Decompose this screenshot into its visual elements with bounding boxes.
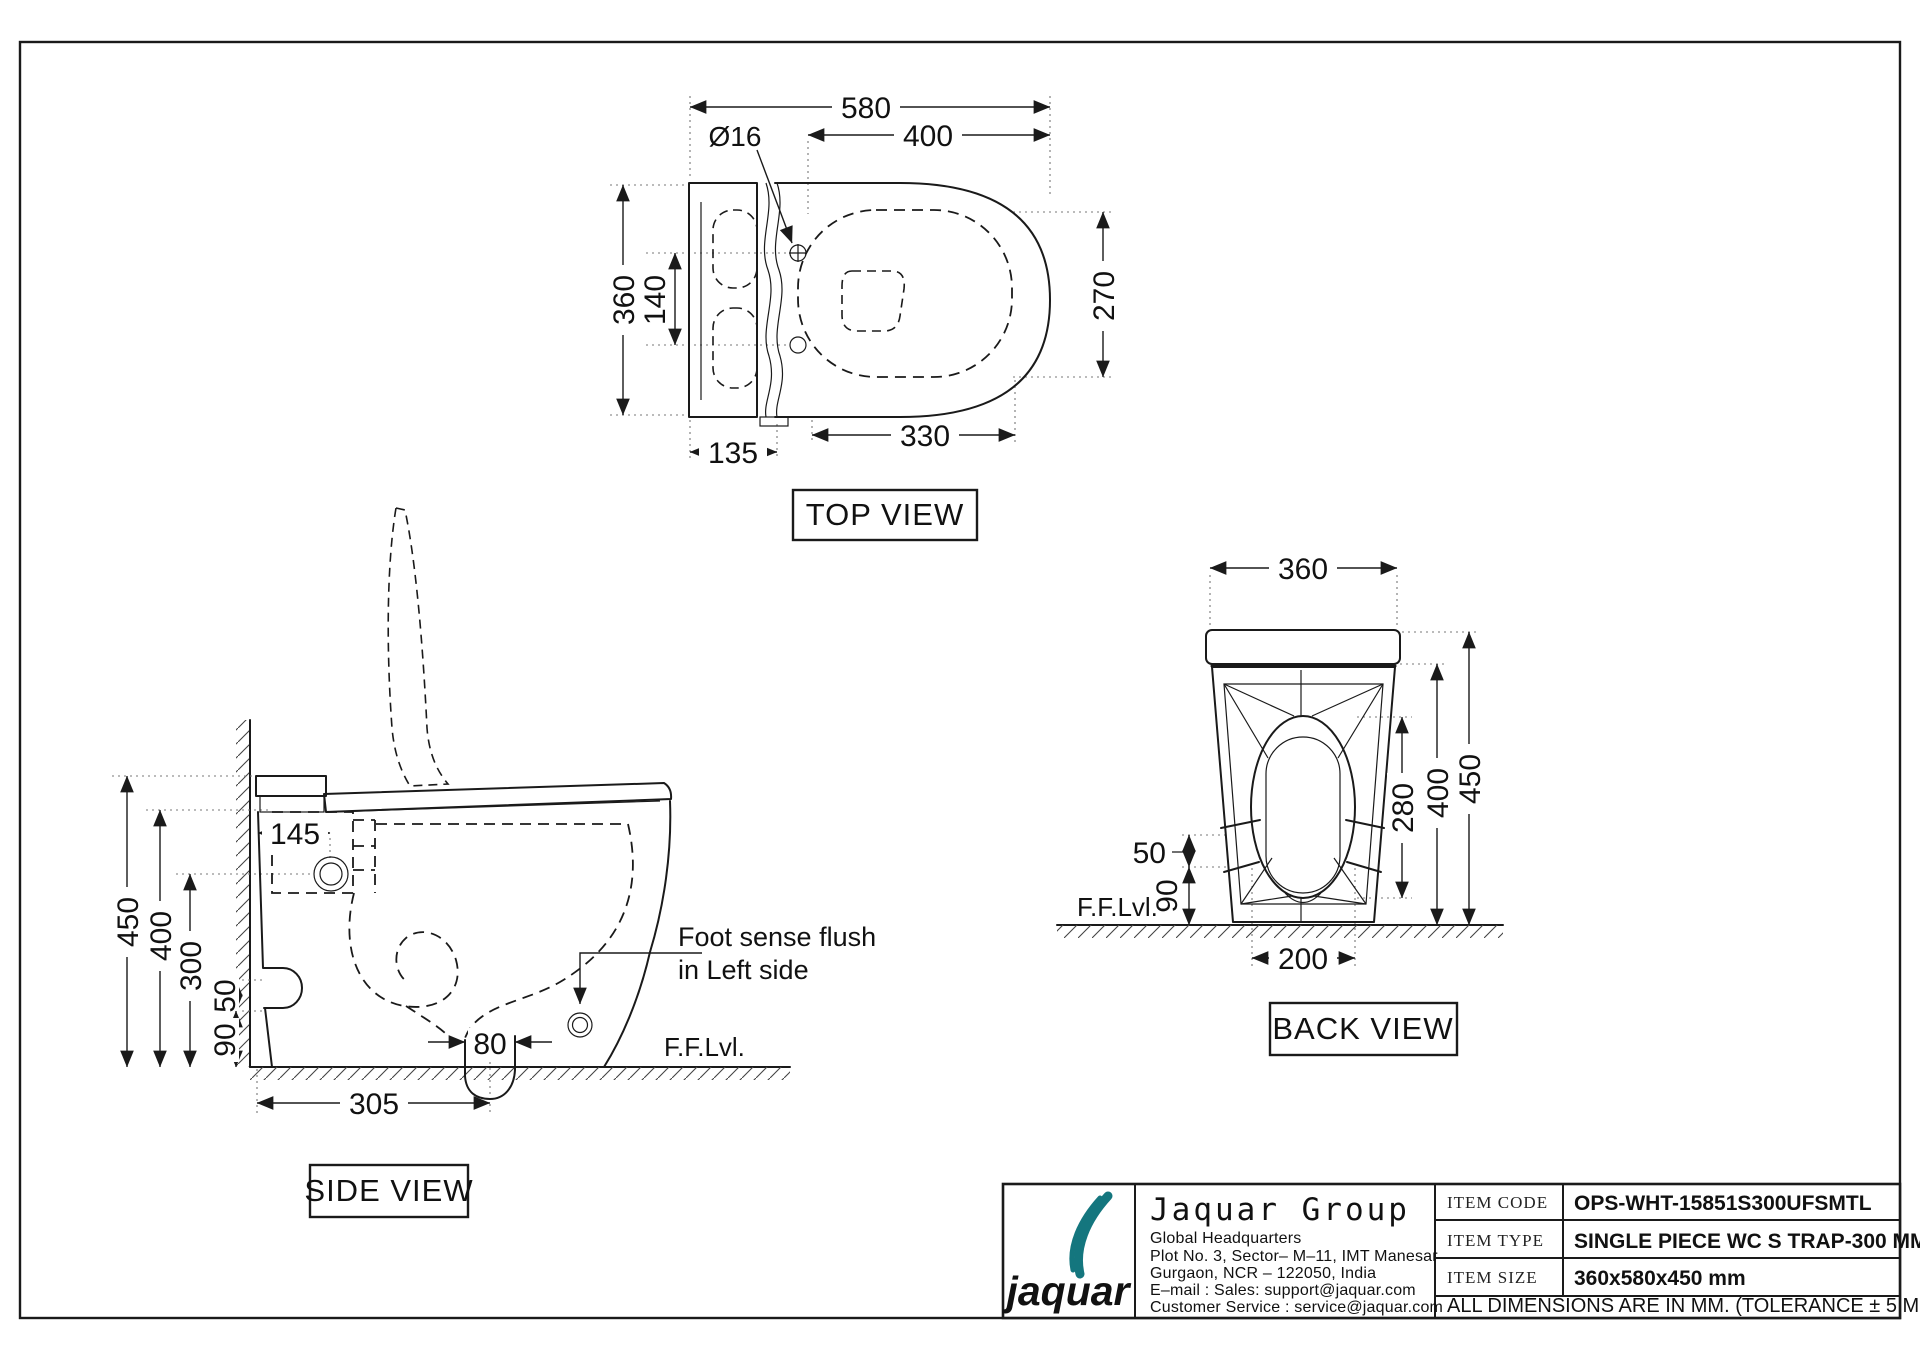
seat-dashed [798,210,1012,377]
dim-80: 80 [473,1028,506,1061]
dim-305: 305 [349,1088,399,1121]
dim-400-back: 400 [1422,768,1455,818]
dim-360-back: 360 [1278,553,1328,586]
view-side: F.F.Lvl. [112,508,876,1217]
dim-145: 145 [270,818,320,851]
back-belts [1221,820,1384,872]
hinge-wave-line-1 [764,183,771,417]
company-name: Jaquar Group [1150,1192,1410,1228]
item-size-label: ITEM SIZE [1447,1268,1538,1287]
drawing-sheet: 580 400 Ø16 360 140 270 330 135 TOP VIE [0,0,1920,1356]
item-size-value: 360x580x450 mm [1574,1267,1746,1290]
sheet-border [20,42,1900,1318]
title-block: jaquar Jaquar Group Global Headquarters … [1001,1184,1920,1318]
dim-dia16: Ø16 [709,121,762,152]
seat-lid-raised-dashed [388,508,448,786]
seat-closed [324,783,671,812]
back-dimensions: 360 450 400 280 50 90 200 [1133,553,1487,976]
logo-wordmark: jaquar [1001,1268,1131,1314]
side-ffl: F.F.Lvl. [664,1032,745,1062]
address-line-1: Global Headquarters [1150,1230,1301,1247]
foot-sensor-circle [568,1013,592,1037]
view-top: 580 400 Ø16 360 140 270 330 135 TOP VIE [608,92,1121,540]
dim-280-back: 280 [1387,783,1420,833]
dim-270: 270 [1088,271,1121,321]
address-line-3: Gurgaon, NCR – 122050, India [1150,1265,1376,1282]
top-view-wc-outline [689,183,1050,426]
address-line-5: Customer Service : service@jaquar.com [1150,1299,1443,1316]
back-ffl: F.F.Lvl. [1077,892,1158,922]
foot-sense-annotation: Foot sense flush in Left side [580,922,876,1004]
cistern-lid [256,776,326,796]
dim-50-back: 50 [1133,837,1166,870]
top-construction-lines [610,96,1112,460]
address-line-4: E–mail : Sales: support@jaquar.com [1150,1282,1416,1299]
back-view-label: BACK VIEW [1272,1011,1453,1046]
dim-140: 140 [639,275,672,325]
foot-sense-note-line2: in Left side [678,955,809,985]
water-spot-dashed [842,271,904,331]
cistern-back [1206,630,1400,664]
top-dimensions: 580 400 Ø16 360 140 270 330 135 [608,92,1121,470]
hinge-wave-line-2 [775,183,782,417]
technical-drawing: 580 400 Ø16 360 140 270 330 135 TOP VIE [0,0,1920,1356]
dim-580: 580 [841,92,891,125]
item-code-label: ITEM CODE [1447,1193,1548,1212]
dim-400-side: 400 [145,911,178,961]
dim-90-side: 90 [209,1023,242,1056]
dim-450-side: 450 [112,897,145,947]
item-code-value: OPS-WHT-15851S300UFSMTL [1574,1192,1872,1215]
side-floor-hatch [250,1067,790,1080]
item-type-label: ITEM TYPE [1447,1231,1544,1250]
dim-90-back: 90 [1151,879,1184,912]
dia16-leader [757,150,792,243]
foot-sense-note-line1: Foot sense flush [678,922,876,952]
bolt-hole-bottom [790,337,806,353]
address-line-2: Plot No. 3, Sector– M–11, IMT Manesar [1150,1248,1438,1265]
dim-300-side: 300 [175,941,208,991]
dim-200-back: 200 [1278,943,1328,976]
bowl-outer [775,183,1050,417]
item-type-value: SINGLE PIECE WC S TRAP-300 MM [1574,1230,1920,1253]
dim-360-top: 360 [608,275,641,325]
side-view-label: SIDE VIEW [304,1173,473,1208]
dim-135: 135 [708,437,758,470]
back-floor-hatch [1057,925,1503,938]
tolerance-note: ALL DIMENSIONS ARE IN MM. (TOLERANCE ± 5… [1447,1295,1920,1317]
flush-valve-circle [314,857,348,891]
dim-330: 330 [900,420,950,453]
back-view-wc-outline [1206,630,1400,922]
top-view-label: TOP VIEW [806,497,964,532]
view-back: F.F.Lvl. [1057,553,1503,1055]
dim-400: 400 [903,120,953,153]
flush-stub [760,417,788,426]
dim-50-side: 50 [209,979,242,1012]
side-view-wc-outline [256,508,671,1099]
body-front-edge [604,801,670,1067]
bowl-back-inner [1266,737,1340,893]
dim-450-back: 450 [1454,754,1487,804]
